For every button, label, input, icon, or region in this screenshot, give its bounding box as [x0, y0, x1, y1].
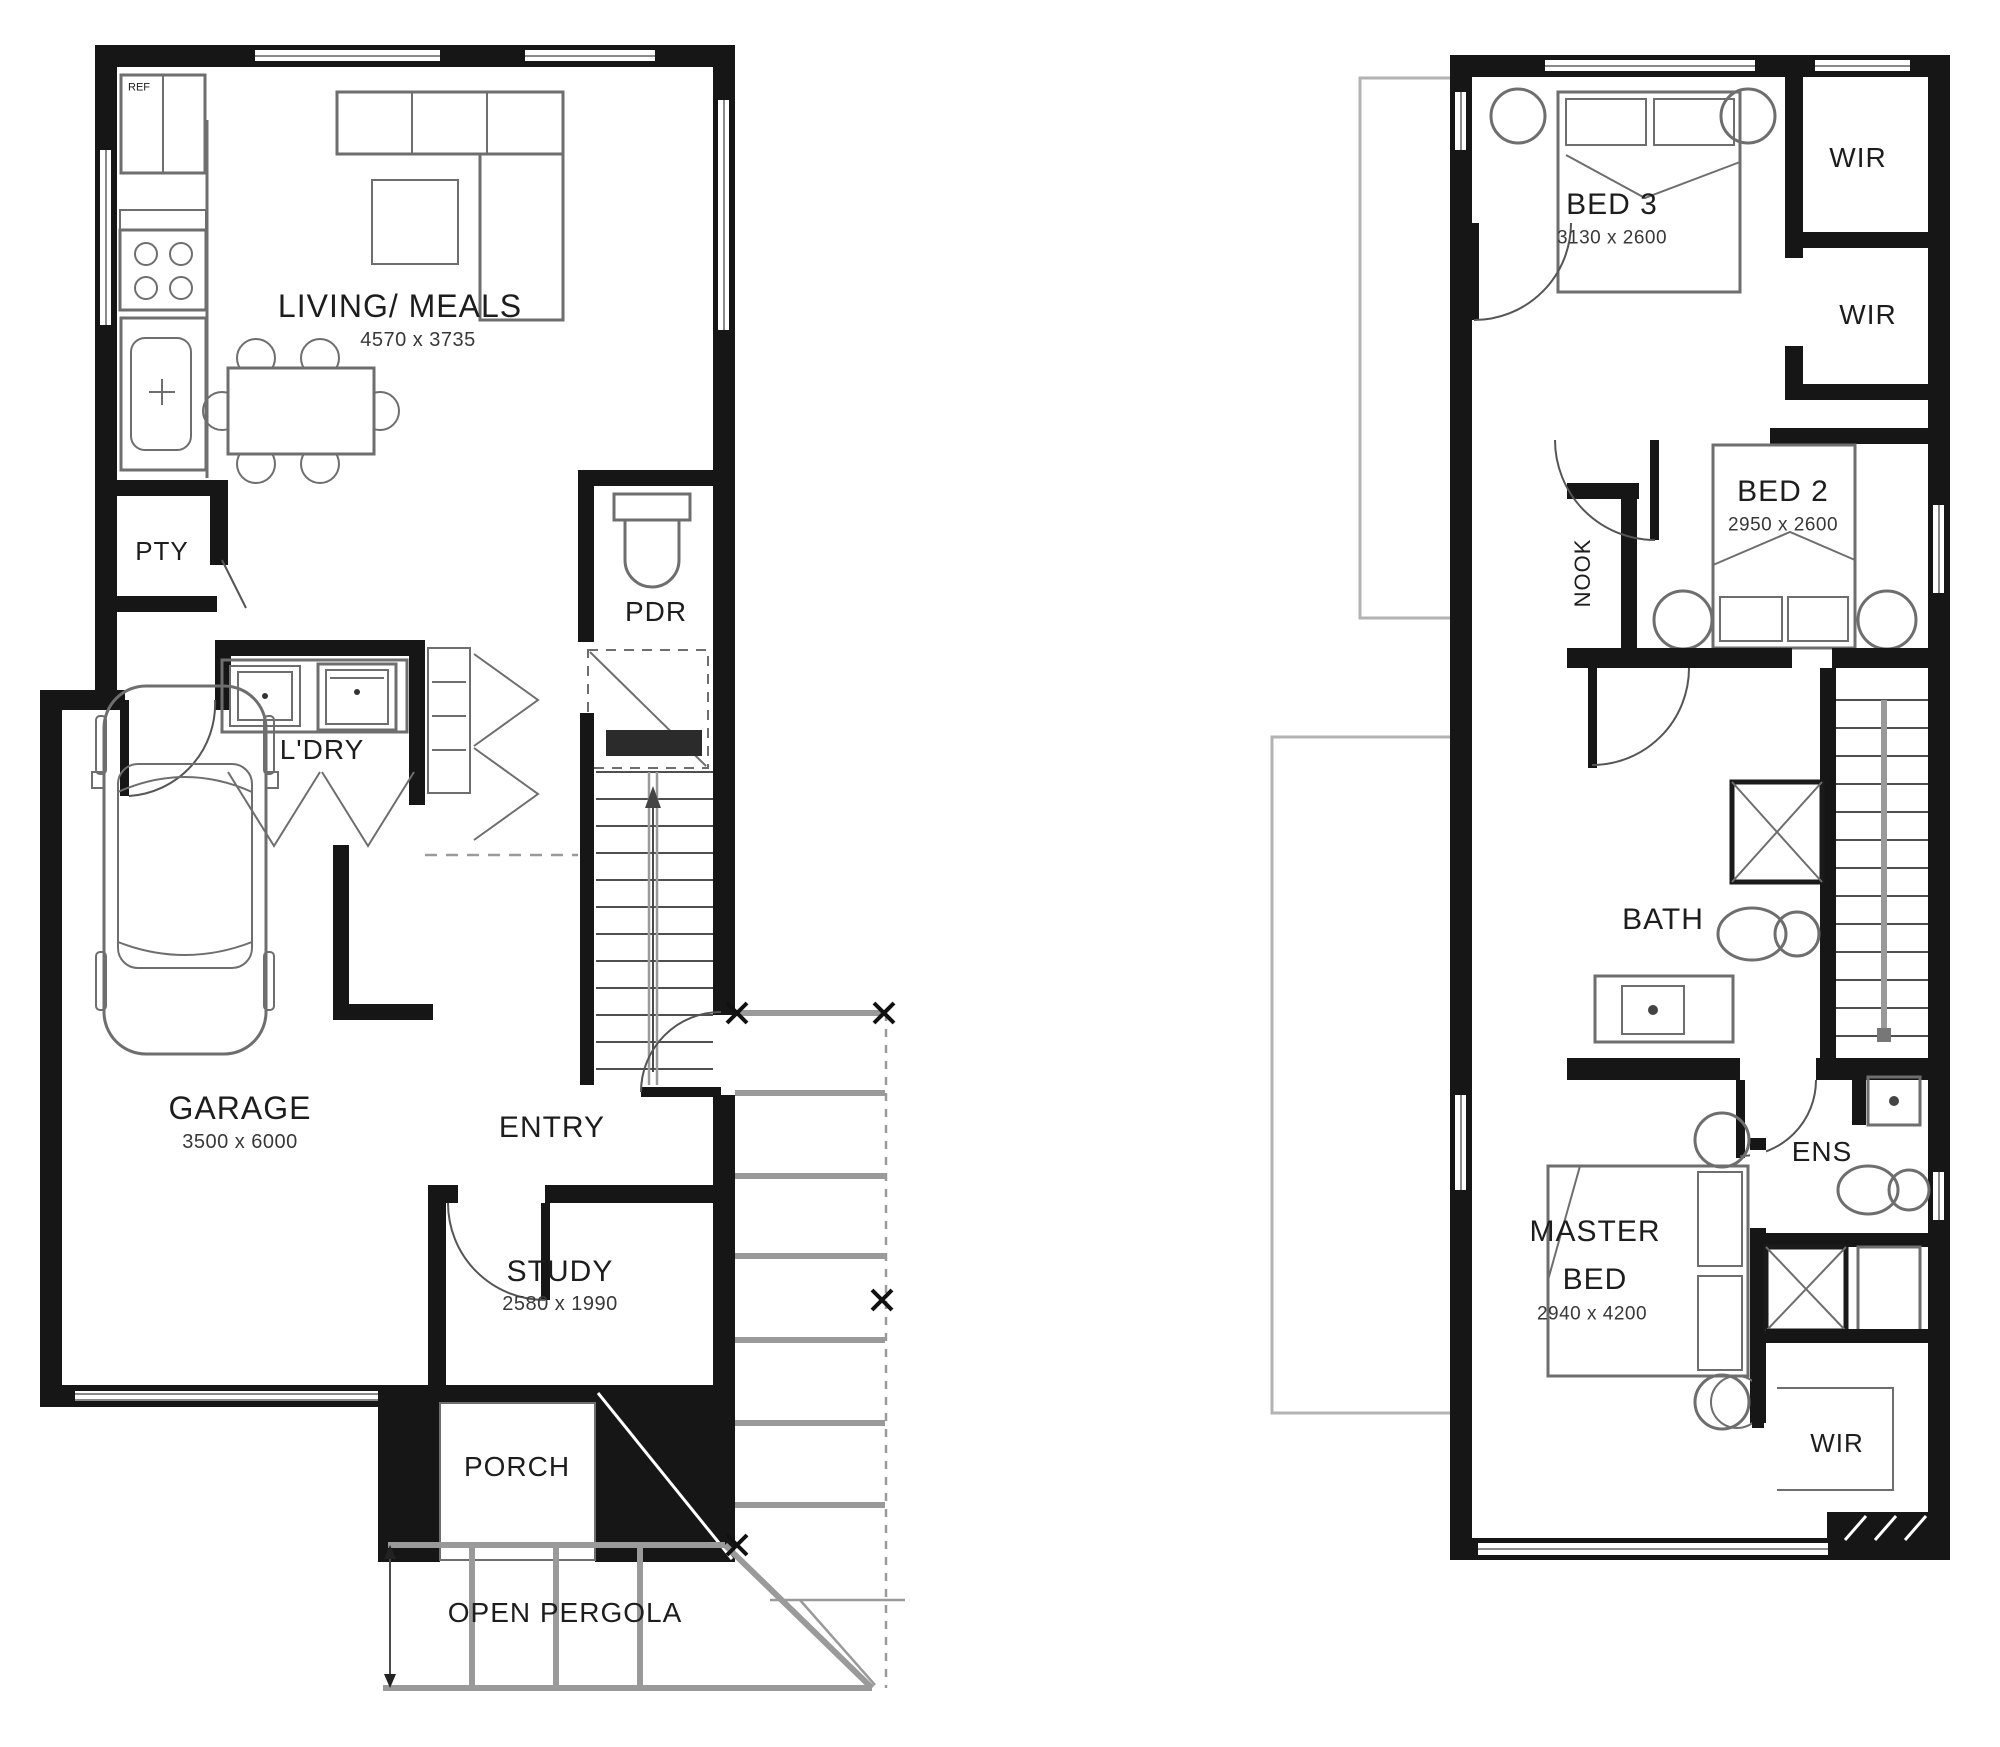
- room-dims-master: 2940 x 4200: [1537, 1305, 1647, 1324]
- room-label-wir-top: WIR: [1829, 144, 1886, 172]
- kitchen-icons: [120, 75, 207, 478]
- room-label-bed3: BED 3: [1566, 190, 1658, 220]
- car-icon: [92, 686, 278, 1054]
- area-label-open-pergola: OPEN PERGOLA: [448, 1599, 683, 1627]
- room-dims-bed2: 2950 x 2600: [1728, 516, 1838, 535]
- stairs-upper-icon: [1820, 668, 1928, 1080]
- room-label-powder: PDR: [625, 598, 687, 626]
- bed2-icons: [1555, 428, 1928, 668]
- dining-table-icon: [203, 339, 399, 483]
- room-label-ensuite: ENS: [1792, 1138, 1853, 1166]
- room-label-study: STUDY: [507, 1257, 614, 1287]
- linen-cupboard-icon: [428, 648, 538, 840]
- room-label-laundry: L'DRY: [280, 736, 365, 764]
- wir-bottom-icons: [1711, 1372, 1893, 1490]
- garage-door-icon: [120, 640, 231, 796]
- room-label-wir-bottom: WIR: [1810, 1430, 1864, 1456]
- room-label-wir-mid: WIR: [1839, 301, 1896, 329]
- room-label-nook: NOOK: [1572, 539, 1594, 608]
- room-label-master-line2: BED: [1563, 1265, 1628, 1295]
- room-dims-living: 4570 x 3735: [360, 330, 476, 350]
- room-label-living: LIVING/ MEALS: [278, 290, 522, 322]
- bed3-icons: [1470, 89, 1775, 657]
- room-dims-garage: 3500 x 6000: [182, 1132, 298, 1152]
- wir-walls: [1785, 77, 1928, 400]
- room-label-bed2: BED 2: [1737, 477, 1829, 507]
- room-label-porch: PORCH: [464, 1453, 570, 1481]
- room-dims-bed3: 3130 x 2600: [1557, 229, 1667, 248]
- room-label-master-line1: MASTER: [1529, 1217, 1660, 1247]
- room-label-garage: GARAGE: [169, 1092, 312, 1124]
- hall-walls: [333, 845, 433, 1020]
- ensuite-icons: [1750, 1077, 1929, 1423]
- upper-floor-plan: [1272, 55, 1950, 1560]
- room-label-entry: ENTRY: [499, 1113, 605, 1143]
- sofa-icon: [337, 92, 563, 320]
- room-label-ref: REF: [128, 83, 150, 94]
- room-dims-study: 2580 x 1990: [502, 1294, 618, 1314]
- room-label-pantry: PTY: [135, 538, 189, 564]
- understair-cupboard-icon: [425, 650, 708, 855]
- floor-plan-drawing: [0, 0, 2000, 1747]
- upper-void-outlines: [1272, 78, 1452, 1413]
- room-label-bath: BATH: [1622, 905, 1704, 935]
- floor-plan-canvas: REF LIVING/ MEALS 4570 x 3735 PTY PDR L'…: [0, 0, 2000, 1747]
- pergola-icons: [383, 1003, 905, 1688]
